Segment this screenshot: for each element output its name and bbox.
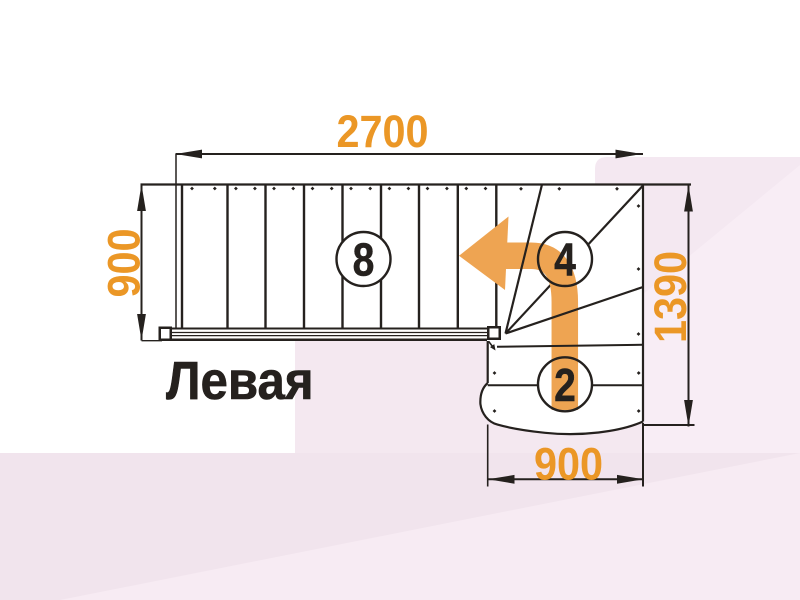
svg-text:4: 4 — [554, 235, 576, 287]
svg-text:Левая: Левая — [166, 350, 314, 410]
svg-text:900: 900 — [100, 228, 150, 297]
svg-text:900: 900 — [534, 440, 603, 490]
svg-text:1390: 1390 — [646, 251, 696, 343]
svg-text:8: 8 — [353, 235, 375, 287]
svg-text:2700: 2700 — [336, 107, 428, 157]
svg-text:2: 2 — [554, 360, 576, 412]
